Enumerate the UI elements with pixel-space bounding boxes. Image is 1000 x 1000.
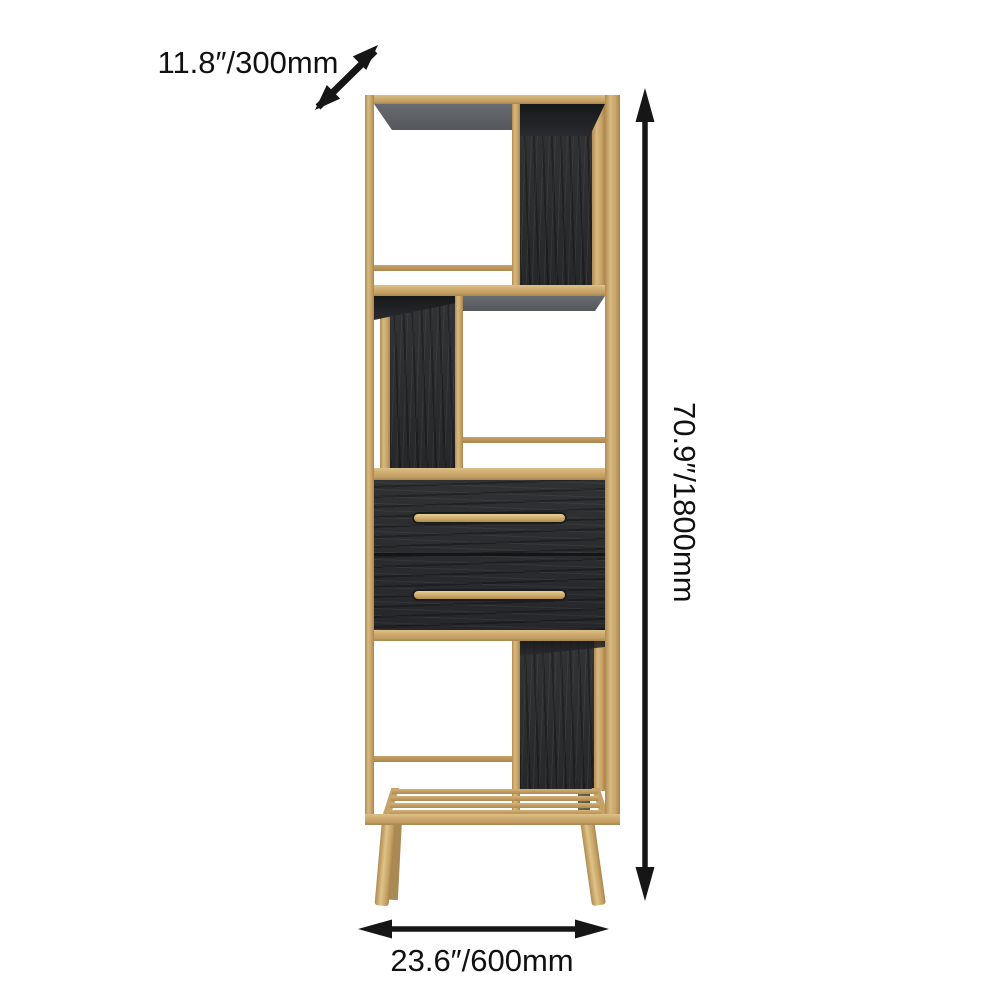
frame-left-post [365,95,374,825]
depth-dimension-label: 11.8″/300mm [152,46,344,79]
height-dimension-label: 70.9″/1800mm [668,402,701,603]
half-rail-section1 [374,265,512,271]
frame-bottom-bar [365,814,620,825]
wood-panel-section1-gold-edge [592,104,605,285]
shelf-bar-2 [365,468,620,480]
shelf-bar-1 [365,285,620,296]
wood-panel-section4 [520,641,594,791]
wood-panel-section2 [390,296,455,468]
shelf-bar-3 [365,630,620,641]
product-dimension-diagram: 11.8″/300mm 70.9″/1800mm 23.6″/600mm [0,0,1000,1000]
base-slat-1 [392,789,598,794]
upper-drawer-handle [412,512,567,524]
half-rail-section4 [374,756,512,762]
horizontal-double-arrow-icon [358,920,609,939]
shelf-underside-section2 [463,296,605,311]
frame-top-bar [365,95,620,104]
wood-panel-section4-gold-edge [594,641,605,791]
wood-panel-section2-gold-edge [380,296,390,468]
width-dimension-label: 23.6″/600mm [382,944,582,977]
vertical-divider-section1 [512,104,520,285]
top-shelf-underside [374,104,512,130]
base-slat-2 [391,796,599,801]
vertical-double-arrow-icon [636,88,655,901]
frame-right-post [605,95,620,825]
drawer-seam [374,553,605,556]
base-slat-3 [390,803,600,808]
lower-drawer-handle [412,589,567,601]
half-rail-section2 [463,437,605,443]
vertical-divider-section2 [455,296,463,468]
front-right-leg [580,819,606,906]
